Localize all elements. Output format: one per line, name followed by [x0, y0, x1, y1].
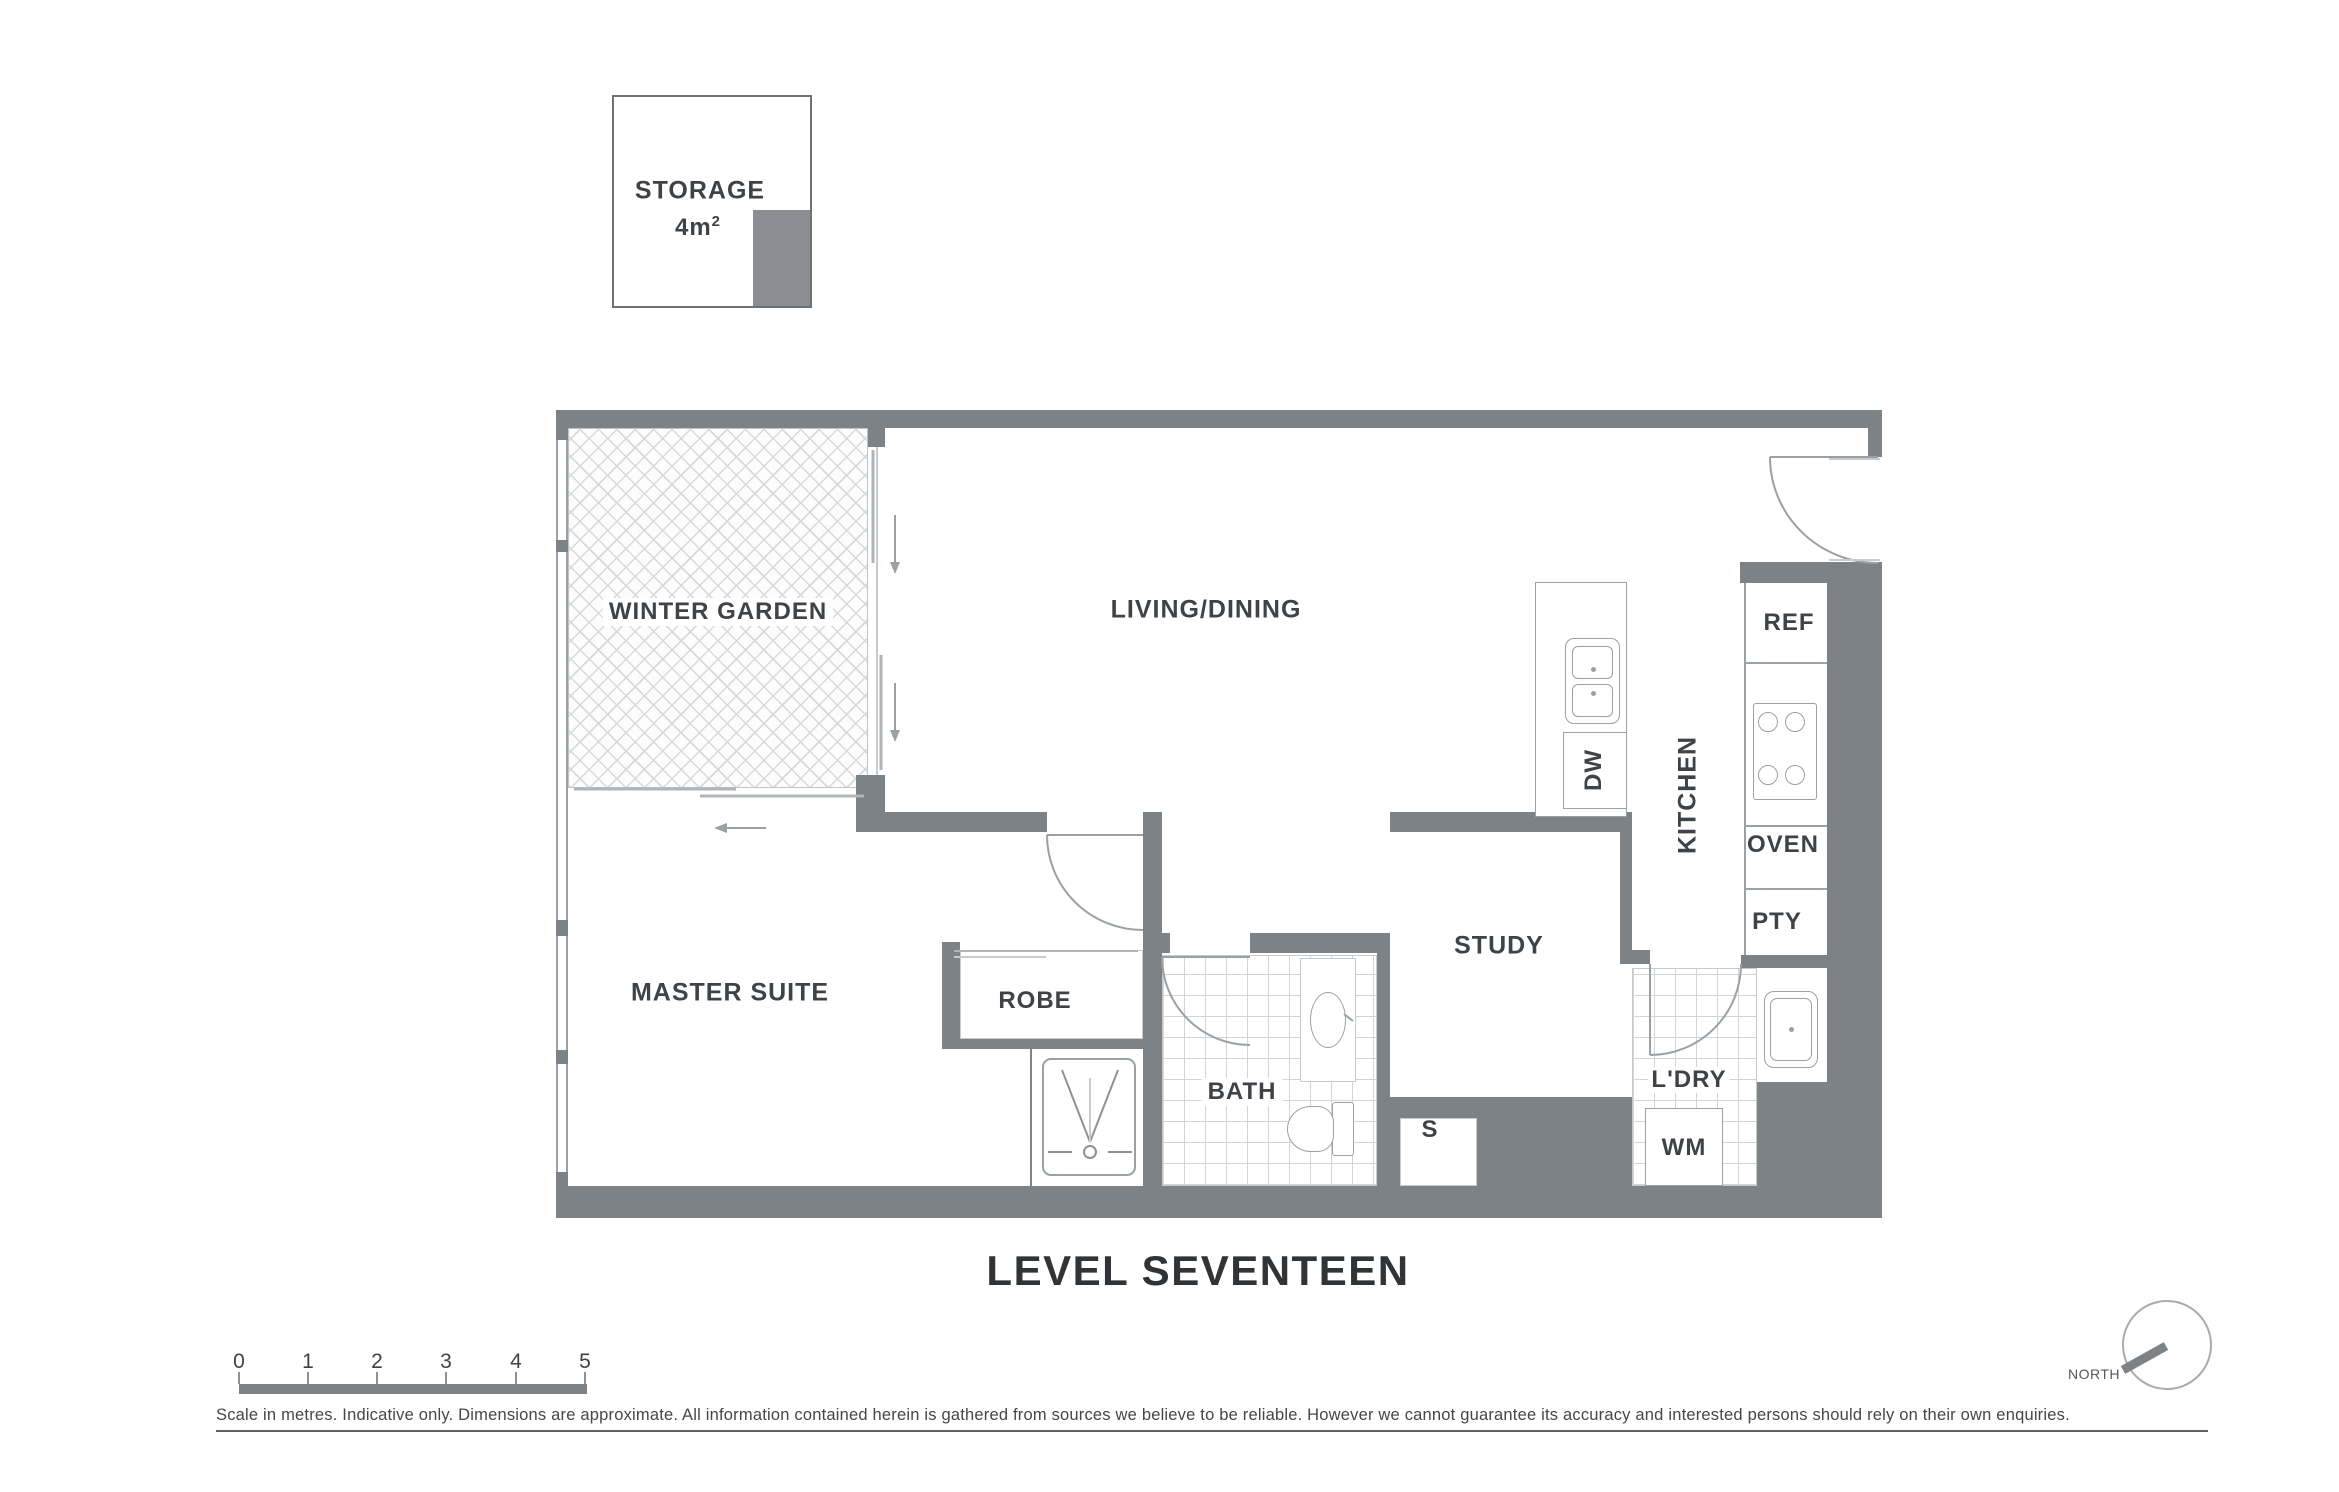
tub-drain-dot — [1789, 1027, 1794, 1032]
scale-tickmark-4 — [515, 1372, 517, 1384]
toilet-cistern — [1332, 1102, 1354, 1156]
floor-plan-page: STORAGE 4m2 — [0, 0, 2339, 1492]
scale-tick-4: 4 — [510, 1350, 522, 1374]
scale-tick-0: 0 — [233, 1350, 245, 1374]
wg-slider-bottom-icon — [574, 789, 864, 833]
sink-drain-dot-top — [1591, 667, 1596, 672]
wall-top — [556, 410, 1882, 428]
wall-robe-bottom — [950, 1039, 1162, 1049]
oven-label: OVEN — [1747, 833, 1819, 857]
shower-tray — [1042, 1058, 1136, 1176]
bench-divider-ref — [1744, 662, 1827, 664]
scale-tick-3: 3 — [440, 1350, 452, 1374]
island-sink-bowl-top — [1572, 646, 1613, 679]
scale-tickmark-0 — [238, 1372, 240, 1384]
wall-laundry-door-jamb — [1620, 950, 1650, 964]
storage-area-value: 4m — [675, 214, 712, 241]
scale-tick-1: 1 — [302, 1350, 314, 1374]
master-door-icon — [1047, 835, 1143, 930]
winter-garden-label: WINTER GARDEN — [603, 598, 833, 626]
scale-tickmark-1 — [307, 1372, 309, 1384]
bench-divider-pty-top — [1744, 888, 1827, 890]
wall-right-above-entry — [1868, 428, 1882, 457]
window-mullion-2 — [556, 540, 568, 552]
dishwasher-label: DW — [1582, 749, 1606, 791]
robe-label: ROBE — [998, 989, 1071, 1013]
disclaimer-text: Scale in metres. Indicative only. Dimens… — [216, 1406, 2070, 1425]
north-compass-icon — [2123, 1301, 2211, 1389]
burner-bottom-right — [1785, 765, 1805, 785]
wm-label: WM — [1662, 1136, 1707, 1160]
basin-icon — [1310, 992, 1346, 1048]
scale-bar-strip — [239, 1384, 587, 1394]
wall-robe-left — [942, 942, 960, 1049]
island-sink-bowl-bottom — [1572, 684, 1613, 717]
storage-solid-block — [753, 210, 810, 306]
ref-label: REF — [1764, 611, 1815, 635]
storage-area-sup: 2 — [712, 213, 721, 230]
burner-top-right — [1785, 712, 1805, 732]
wall-study-right — [1620, 832, 1632, 952]
wall-above-robe — [856, 812, 1047, 832]
window-mullion-3 — [556, 920, 568, 936]
storage-label: STORAGE — [635, 179, 765, 204]
wall-kitchen-stub — [1741, 955, 1827, 968]
scale-tickmark-2 — [376, 1372, 378, 1384]
window-mullion-1 — [556, 428, 568, 440]
kitchen-label: KITCHEN — [1676, 736, 1701, 854]
wall-master-door-jamb — [1143, 812, 1162, 842]
bench-divider-oven-top — [1744, 825, 1827, 827]
living-dining-label: LIVING/DINING — [1111, 598, 1302, 623]
toilet-bowl — [1287, 1106, 1334, 1152]
pty-label: PTY — [1752, 910, 1802, 934]
burner-bottom-left — [1758, 765, 1778, 785]
s-label: S — [1421, 1118, 1438, 1142]
scale-tickmark-3 — [445, 1372, 447, 1384]
page-title: LEVEL SEVENTEEN — [986, 1250, 1409, 1292]
entry-door-icon — [1770, 457, 1880, 563]
wall-below-entry — [1740, 562, 1882, 583]
wg-slider-right-icon — [873, 447, 881, 775]
scale-tick-5: 5 — [579, 1350, 591, 1374]
disclaimer-underline — [216, 1430, 2208, 1432]
wall-bath-right — [1377, 942, 1390, 1097]
wall-bath-left — [1143, 842, 1162, 1186]
storage-area-label: 4m2 — [675, 214, 721, 240]
scale-tickmark-5 — [584, 1372, 586, 1384]
study-label: STUDY — [1454, 934, 1544, 959]
wall-bath-door-jamb — [1162, 933, 1170, 953]
wall-under-laundry-tub — [1757, 1082, 1827, 1186]
bath-label: BATH — [1202, 1078, 1283, 1106]
north-label: NORTH — [2068, 1367, 2120, 1381]
wg-slider-arrows — [890, 515, 900, 742]
wall-bottom — [556, 1186, 1882, 1218]
window-mullion-4 — [556, 1050, 568, 1064]
master-suite-label: MASTER SUITE — [631, 981, 829, 1006]
wall-bath-top — [1250, 933, 1390, 953]
wall-wg-right-bottom-block — [856, 775, 885, 813]
scale-tick-2: 2 — [371, 1350, 383, 1374]
wall-right-main — [1827, 583, 1882, 1218]
burner-top-left — [1758, 712, 1778, 732]
wall-wg-right-top-block — [868, 428, 885, 447]
laundry-label: L'DRY — [1648, 1067, 1729, 1093]
window-mullion-5 — [556, 1172, 568, 1186]
sink-drain-dot-bottom — [1591, 691, 1596, 696]
